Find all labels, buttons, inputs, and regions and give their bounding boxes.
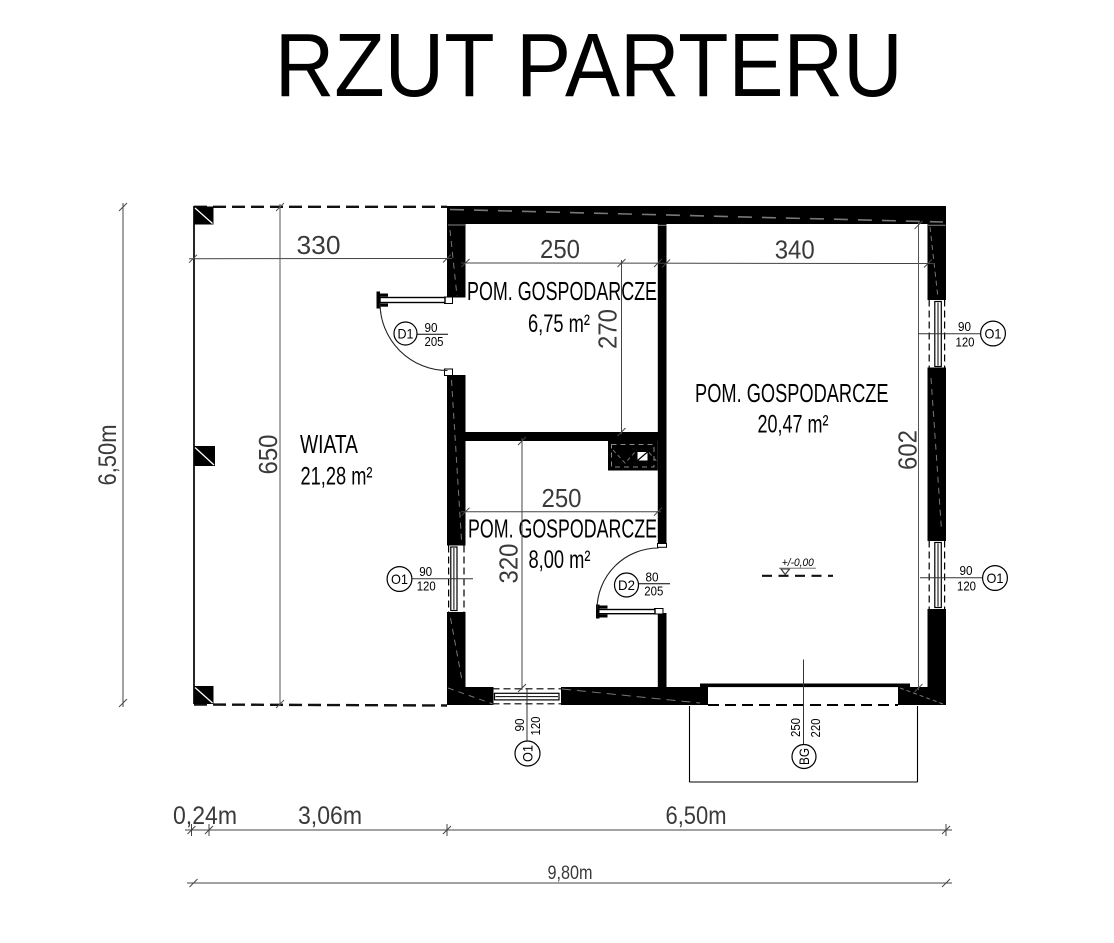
svg-text:250: 250 bbox=[542, 483, 582, 513]
svg-text:8,00 m²: 8,00 m² bbox=[529, 546, 591, 574]
svg-text:205: 205 bbox=[425, 334, 444, 349]
svg-text:6,50m: 6,50m bbox=[94, 425, 122, 486]
svg-text:O1: O1 bbox=[985, 326, 1002, 342]
svg-text:+/-0,00: +/-0,00 bbox=[782, 557, 815, 569]
svg-text:POM. GOSPODARCZE: POM. GOSPODARCZE bbox=[467, 276, 657, 306]
svg-text:650: 650 bbox=[253, 435, 283, 475]
svg-text:250: 250 bbox=[788, 718, 803, 737]
svg-text:120: 120 bbox=[417, 579, 436, 594]
svg-text:POM. GOSPODARCZE: POM. GOSPODARCZE bbox=[468, 514, 657, 544]
svg-text:O1: O1 bbox=[391, 571, 408, 587]
svg-text:220: 220 bbox=[808, 719, 823, 738]
svg-text:D1: D1 bbox=[398, 326, 414, 342]
svg-text:602: 602 bbox=[893, 430, 923, 470]
svg-text:20,47 m²: 20,47 m² bbox=[758, 411, 829, 439]
svg-text:90: 90 bbox=[425, 320, 438, 335]
svg-text:WIATA: WIATA bbox=[300, 429, 358, 459]
svg-text:120: 120 bbox=[528, 717, 543, 736]
svg-text:9,80m: 9,80m bbox=[548, 863, 593, 884]
svg-text:90: 90 bbox=[512, 719, 527, 732]
svg-text:POM. GOSPODARCZE: POM. GOSPODARCZE bbox=[695, 378, 889, 408]
svg-text:320: 320 bbox=[494, 544, 524, 584]
svg-text:3,06m: 3,06m bbox=[298, 802, 362, 830]
svg-text:330: 330 bbox=[297, 230, 341, 260]
svg-text:6,50m: 6,50m bbox=[666, 802, 727, 830]
svg-text:250: 250 bbox=[540, 234, 580, 264]
svg-text:0,24m: 0,24m bbox=[173, 802, 237, 830]
svg-text:90: 90 bbox=[960, 563, 973, 578]
svg-text:120: 120 bbox=[957, 579, 976, 594]
svg-text:90: 90 bbox=[958, 319, 971, 334]
svg-text:6,75 m²: 6,75 m² bbox=[528, 310, 590, 338]
svg-text:21,28 m²: 21,28 m² bbox=[301, 463, 373, 491]
svg-text:O1: O1 bbox=[520, 745, 536, 762]
svg-text:120: 120 bbox=[956, 335, 975, 350]
svg-text:90: 90 bbox=[419, 564, 432, 579]
svg-text:340: 340 bbox=[775, 235, 815, 265]
svg-text:O1: O1 bbox=[987, 570, 1004, 586]
svg-text:RZUT PARTERU: RZUT PARTERU bbox=[275, 16, 903, 116]
svg-text:270: 270 bbox=[593, 309, 623, 349]
svg-text:205: 205 bbox=[644, 584, 663, 599]
svg-text:80: 80 bbox=[646, 570, 659, 585]
svg-text:BG: BG bbox=[796, 748, 812, 765]
svg-text:D2: D2 bbox=[618, 577, 635, 593]
